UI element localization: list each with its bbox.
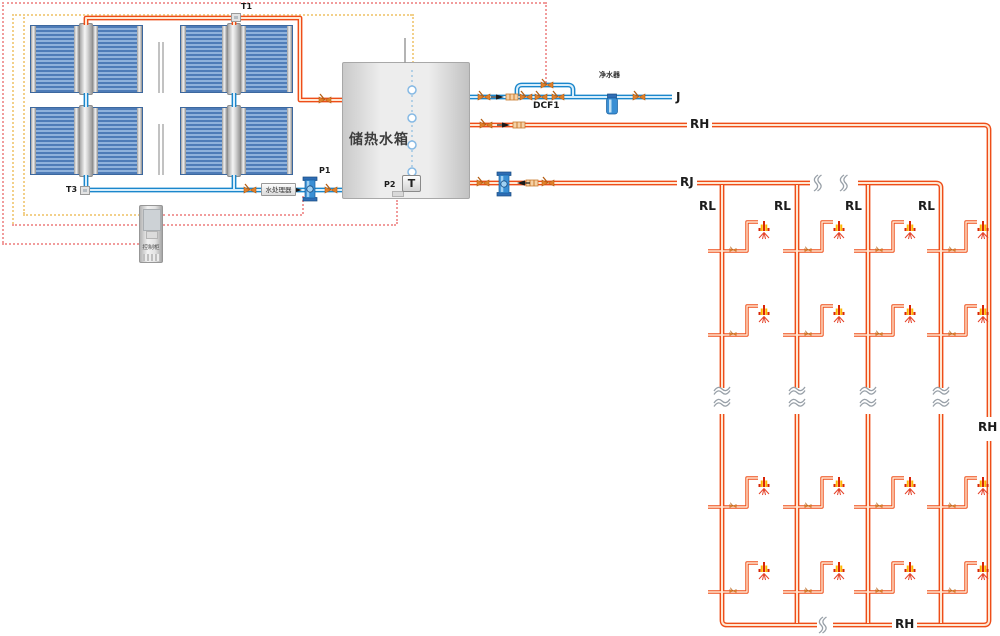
pipe-break — [814, 175, 818, 191]
label-rh-bottom: RH — [892, 618, 917, 630]
valve-icon — [633, 91, 645, 100]
panel-end-cap — [93, 26, 98, 92]
pipe-break — [714, 399, 730, 403]
hot-pipe-core — [858, 183, 941, 388]
shower-branch-pipe — [783, 563, 833, 592]
shower-branch-core — [927, 306, 977, 335]
shower-branch-core — [783, 306, 833, 335]
panel-manifold — [227, 105, 241, 177]
hot-pipe-core — [722, 414, 817, 625]
collector-panel — [92, 107, 143, 175]
label-t1: T1 — [241, 3, 252, 11]
solar-hot-water-diagram: 控制柜 T 水处理器 T1 T3 P1 P2 DCF1 J RH RJ RH R… — [0, 0, 1000, 636]
pipe-break — [860, 403, 876, 407]
panel-manifold — [79, 105, 93, 177]
label-riser-rl: RL — [774, 200, 791, 212]
flow-arrow-icon — [517, 180, 530, 185]
shower-branch-pipe — [927, 478, 977, 507]
pipe-break — [844, 175, 848, 191]
valve-icon — [730, 503, 737, 508]
sensor-t3-box — [80, 186, 90, 195]
label-riser-rl: RL — [918, 200, 935, 212]
pipe-break — [714, 403, 730, 407]
valve-icon — [949, 247, 956, 252]
valve-icon — [876, 588, 883, 593]
valve-icon — [477, 177, 489, 186]
shower-branch-core — [783, 222, 833, 251]
cabinet-ridges — [143, 254, 159, 261]
pipe-break — [818, 175, 822, 191]
shower-branch-core — [927, 478, 977, 507]
collector-panel — [30, 107, 80, 175]
shower-head-icon — [834, 562, 844, 580]
pipe-break — [714, 387, 730, 391]
shower-branch-pipe — [927, 306, 977, 335]
sensor-wire-left-outer — [12, 14, 14, 224]
label-riser-rl: RL — [699, 200, 716, 212]
shower-head-icon — [834, 477, 844, 495]
control-wire-dcf1-drop — [545, 2, 547, 86]
shower-head-icon — [759, 562, 769, 580]
panel-end-cap — [137, 26, 142, 92]
valve-icon — [478, 91, 490, 100]
valve-icon — [520, 91, 532, 100]
collector-panel — [180, 25, 228, 93]
valve-icon — [805, 331, 812, 336]
pipe-break — [860, 399, 876, 403]
hot-pipe-core — [833, 441, 989, 625]
collector-panel — [240, 107, 293, 175]
panel-manifold — [227, 23, 241, 95]
control-cabinet: 控制柜 — [139, 205, 163, 263]
shower-branch-core — [854, 222, 904, 251]
valve-icon — [876, 331, 883, 336]
sensor-t1-box — [231, 13, 241, 22]
shower-branch-pipe — [708, 478, 758, 507]
panel-end-cap — [287, 26, 292, 92]
pipe-break — [860, 387, 876, 391]
control-wire-p2-drop — [396, 200, 398, 224]
shower-branch-pipe — [854, 478, 904, 507]
cold-pipe — [517, 85, 573, 97]
valve-icon — [319, 94, 331, 103]
panel-end-cap — [181, 108, 186, 174]
valve-icon — [949, 331, 956, 336]
shower-branch-pipe — [708, 222, 758, 251]
label-rh-top: RH — [687, 118, 712, 130]
shower-branch-core — [708, 478, 758, 507]
shower-head-icon — [759, 221, 769, 239]
valve-icon — [325, 184, 337, 193]
shower-head-icon — [978, 562, 988, 580]
valve-icon — [876, 247, 883, 252]
hot-pipe — [722, 414, 817, 625]
collector-panel — [240, 25, 293, 93]
label-rh-right: RH — [975, 421, 1000, 433]
valve-icon — [730, 588, 737, 593]
pipe-break — [933, 399, 949, 403]
shower-branch-pipe — [854, 222, 904, 251]
cold-pipe-core — [517, 85, 573, 97]
collector-panel — [180, 107, 228, 175]
panel-end-cap — [93, 108, 98, 174]
check-valve-icon — [526, 180, 538, 186]
valve-icon — [805, 503, 812, 508]
pipe-break — [714, 391, 730, 395]
shower-branch-pipe — [927, 222, 977, 251]
shower-branch-pipe — [854, 306, 904, 335]
label-p2: P2 — [384, 181, 395, 189]
shower-head-icon — [905, 305, 915, 323]
panel-end-cap — [241, 108, 246, 174]
sensor-p2-box — [392, 191, 404, 197]
shower-head-icon — [905, 221, 915, 239]
shower-branch-pipe — [708, 306, 758, 335]
shower-branch-core — [927, 222, 977, 251]
cold-pipe-core — [86, 175, 342, 190]
cabinet-neck — [146, 231, 158, 239]
label-t3: T3 — [66, 186, 77, 194]
control-wire-left — [2, 2, 4, 243]
valve-icon — [552, 91, 564, 100]
hot-pipe — [833, 441, 989, 625]
shower-branch-pipe — [783, 478, 833, 507]
panel-end-cap — [31, 108, 36, 174]
label-purifier: 净水器 — [599, 72, 620, 79]
tank-name: 储热水箱 — [349, 133, 409, 147]
control-wire-p1-run — [163, 214, 302, 216]
pipe-break — [789, 387, 805, 391]
panel-end-cap — [287, 108, 292, 174]
control-wire-top — [2, 2, 545, 4]
array-continuation-mark — [158, 124, 160, 175]
shower-head-icon — [905, 477, 915, 495]
pipe-break — [933, 391, 949, 395]
hot-pipe — [470, 125, 989, 417]
shower-head-icon — [978, 305, 988, 323]
pipe-break — [933, 387, 949, 391]
check-valve-icon — [513, 122, 525, 128]
panel-manifold — [79, 23, 93, 95]
check-valve-icon — [506, 94, 518, 100]
pump-icon — [303, 177, 317, 201]
control-wire-p1-drop — [302, 196, 304, 214]
panel-end-cap — [31, 26, 36, 92]
shower-head-icon — [834, 221, 844, 239]
label-j: J — [676, 91, 680, 103]
shower-branch-core — [708, 306, 758, 335]
pump-icon — [497, 172, 511, 196]
valve-icon — [876, 503, 883, 508]
hot-pipe — [858, 183, 941, 388]
control-wire-bottom — [2, 243, 139, 245]
shower-branch-core — [708, 222, 758, 251]
panel-end-cap — [241, 26, 246, 92]
flow-arrow-icon — [497, 122, 510, 127]
shower-branch-core — [783, 478, 833, 507]
pipe-break — [819, 617, 823, 633]
valve-icon — [542, 177, 554, 186]
shower-branch-pipe — [708, 563, 758, 592]
valve-icon — [730, 247, 737, 252]
sensor-wire-top — [12, 14, 412, 16]
shower-branch-pipe — [854, 563, 904, 592]
pipe-network — [0, 0, 1000, 636]
shower-head-icon — [834, 305, 844, 323]
panel-end-cap — [137, 108, 142, 174]
valve-icon — [805, 247, 812, 252]
shower-head-icon — [759, 305, 769, 323]
label-dcf1: DCF1 — [533, 102, 560, 111]
hot-pipe-core — [470, 125, 989, 417]
valve-icon — [541, 79, 553, 88]
sensor-wire-tank-drop — [412, 14, 414, 66]
shower-head-icon — [978, 477, 988, 495]
cabinet-label: 控制柜 — [141, 242, 162, 251]
valve-icon — [535, 91, 547, 100]
shower-branch-core — [708, 563, 758, 592]
valve-icon — [949, 588, 956, 593]
shower-head-icon — [978, 221, 988, 239]
shower-head-icon — [905, 562, 915, 580]
shower-branch-core — [854, 478, 904, 507]
water-processor: 水处理器 — [261, 183, 296, 196]
shower-branch-core — [854, 306, 904, 335]
shower-branch-pipe — [783, 306, 833, 335]
shower-branch-pipe — [783, 222, 833, 251]
control-wire-p2-run — [12, 224, 396, 226]
pipe-break — [789, 399, 805, 403]
pipe-break — [789, 403, 805, 407]
valve-icon — [805, 588, 812, 593]
cold-pipe — [86, 175, 342, 190]
shower-branch-core — [783, 563, 833, 592]
water-purifier-icon — [607, 94, 618, 114]
shower-branch-pipe — [927, 563, 977, 592]
shower-branch-core — [927, 563, 977, 592]
sensor-wire-left-inner — [23, 14, 25, 214]
label-riser-rl: RL — [845, 200, 862, 212]
valve-icon — [949, 503, 956, 508]
panel-end-cap — [181, 26, 186, 92]
flow-arrow-icon — [491, 94, 504, 99]
pipe-break — [860, 391, 876, 395]
valve-icon — [244, 184, 256, 193]
cabinet-display — [143, 209, 161, 231]
shower-branch-core — [854, 563, 904, 592]
pipe-break — [789, 391, 805, 395]
collector-panel — [92, 25, 143, 93]
array-continuation-mark — [158, 42, 160, 93]
label-rj: RJ — [677, 176, 697, 188]
valve-icon — [480, 119, 492, 128]
collector-panel — [30, 25, 80, 93]
pipe-break — [823, 617, 827, 633]
pipe-break — [840, 175, 844, 191]
shower-head-icon — [759, 477, 769, 495]
array-continuation-mark — [162, 124, 164, 175]
pipe-break — [933, 403, 949, 407]
array-continuation-mark — [162, 42, 164, 93]
tank-temp-sensor: T — [402, 175, 421, 192]
valve-icon — [730, 331, 737, 336]
label-p1: P1 — [319, 167, 330, 175]
